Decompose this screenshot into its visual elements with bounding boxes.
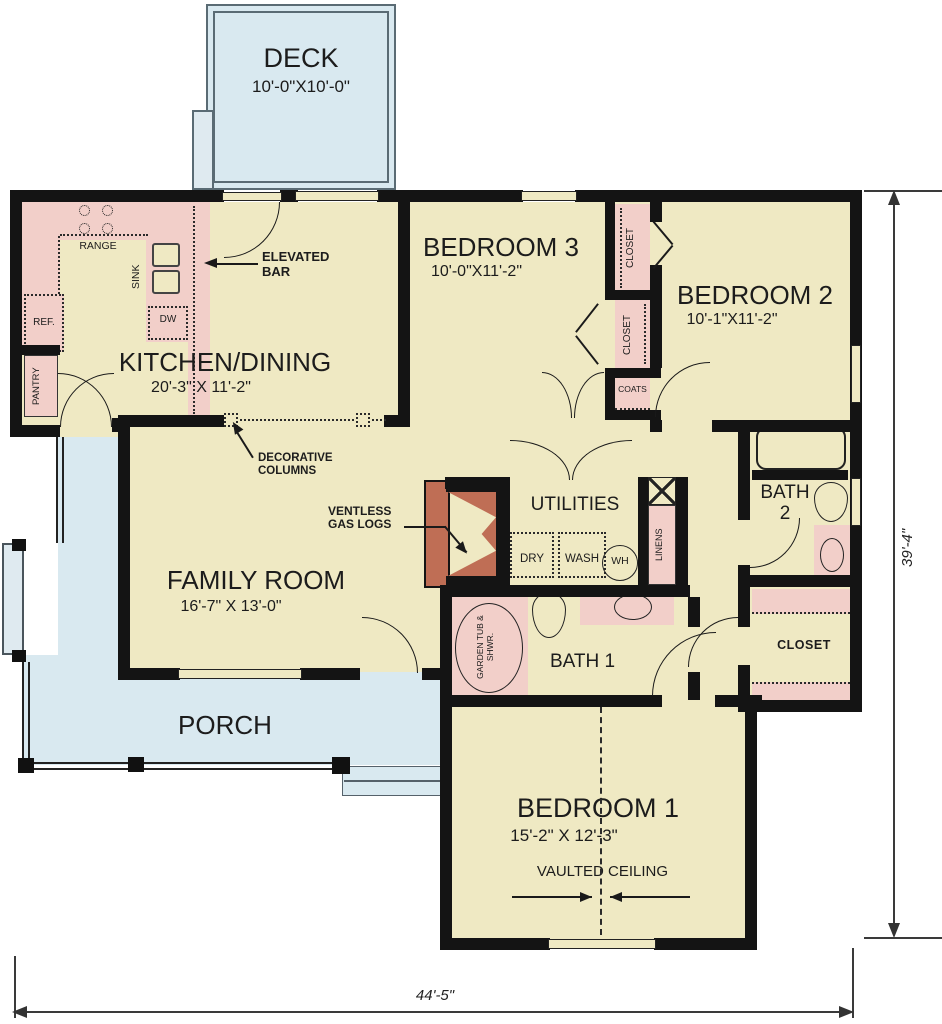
porch-left — [58, 437, 120, 672]
bath2-sink — [820, 538, 844, 572]
vaulted-arrow-line — [610, 896, 690, 898]
window — [521, 191, 577, 201]
wall — [850, 190, 862, 712]
wall — [650, 265, 662, 368]
dishwasher-label: DW — [148, 315, 188, 326]
sink-basins — [152, 243, 182, 297]
decorative-column — [356, 413, 370, 427]
wall — [384, 415, 410, 427]
bedroom3-closet-label: CLOSET — [622, 306, 633, 364]
dim-line-vertical — [893, 194, 895, 932]
decorative-columns-note: DECORATIVE COLUMNS — [258, 452, 360, 478]
white-patch — [22, 437, 58, 655]
porch-post — [128, 757, 144, 772]
elevated-bar-note: ELEVATED BAR — [262, 250, 352, 279]
wall — [22, 345, 60, 355]
wall — [745, 707, 757, 950]
bath1-label: BATH 1 — [535, 652, 630, 672]
wall — [440, 938, 550, 950]
wall — [738, 575, 862, 587]
window — [178, 669, 302, 679]
bath2-tub — [756, 427, 846, 470]
wall — [118, 415, 224, 427]
wall — [676, 477, 688, 589]
window — [851, 345, 861, 403]
porch-post — [332, 757, 350, 774]
deck-label: DECK — [206, 44, 396, 72]
porch-railing-left-lower — [22, 662, 30, 762]
window — [222, 192, 282, 201]
sink-label: SINK — [130, 248, 142, 306]
wall — [445, 477, 505, 489]
wall — [650, 420, 662, 432]
wall — [738, 420, 750, 520]
ventless-gas-logs-note: VENTLESS GAS LOGS — [328, 505, 414, 532]
wall — [377, 190, 523, 202]
porch-railing-bottom — [22, 762, 340, 770]
deck-step — [192, 110, 214, 190]
dim-extension — [864, 190, 942, 192]
porch-post — [12, 650, 26, 662]
closet-rod-dotted — [644, 304, 646, 364]
deck-area — [206, 4, 396, 190]
bedroom1-dims: 15'-2" X 12'-3" — [470, 827, 658, 845]
refrigerator-label: REF. — [24, 318, 64, 329]
window — [295, 191, 379, 201]
porch-railing-left — [56, 437, 64, 543]
wall — [440, 585, 690, 597]
elevated-bar-leader — [216, 263, 258, 265]
family-room-label: FAMILY ROOM — [150, 567, 362, 594]
bath2-label-line1: BATH — [755, 483, 815, 503]
bedroom2-label: BEDROOM 2 — [665, 282, 845, 309]
bedroom3-label: BEDROOM 3 — [412, 234, 590, 261]
master-closet-label: CLOSET — [770, 639, 838, 652]
arrow-left-icon — [204, 258, 217, 268]
wall — [688, 597, 700, 627]
wall — [10, 425, 60, 437]
wall — [738, 587, 750, 627]
dim-arrow-left-icon — [12, 1006, 27, 1018]
bedroom2-dims: 10'-1"X11'-2" — [668, 312, 796, 329]
porch-label: PORCH — [160, 712, 290, 739]
coats-label: COATS — [610, 385, 655, 394]
ventless-leader — [404, 526, 446, 528]
porch-post — [12, 539, 26, 551]
overall-width-dim: 44'-5" — [385, 988, 485, 1004]
wall — [605, 202, 615, 298]
kitchen-dims: 20'-3" X 11'-2" — [95, 380, 307, 397]
washer-label: WASH — [558, 553, 606, 565]
arrow-right-icon — [580, 892, 592, 902]
dim-arrow-up-icon — [888, 190, 900, 205]
deck-dims: 10'-0"X10'-0" — [206, 78, 396, 96]
bedroom2-closet-label: CLOSET — [625, 216, 636, 280]
coats-closet — [615, 378, 650, 410]
wall — [440, 695, 662, 707]
dim-arrow-down-icon — [888, 923, 900, 938]
ridge-line — [600, 707, 602, 935]
porch-bay-window — [2, 543, 24, 655]
closet-rod-dotted — [620, 208, 622, 288]
dim-extension — [864, 937, 942, 939]
wall — [738, 700, 862, 712]
dryer-label: DRY — [510, 553, 554, 565]
wall — [10, 190, 224, 202]
linens-bifold-door — [648, 477, 676, 505]
wall — [440, 585, 452, 950]
garden-tub-label: GARDEN TUB & SHWR. — [476, 602, 502, 692]
bedroom1-label: BEDROOM 1 — [478, 794, 718, 822]
wall — [498, 477, 510, 597]
wall — [654, 938, 757, 950]
window — [851, 478, 861, 526]
closet-shelf-top — [752, 589, 850, 614]
wall — [752, 470, 848, 480]
kitchen-label: KITCHEN/DINING — [95, 349, 355, 376]
utilities-label: UTILITIES — [505, 495, 645, 515]
arrow-left-icon — [610, 892, 622, 902]
range-label: RANGE — [62, 241, 134, 252]
wall — [118, 418, 130, 672]
window — [548, 939, 656, 949]
wall — [712, 420, 862, 432]
wall — [575, 190, 862, 202]
bedroom3-dims: 10'-0"X11'-2" — [414, 264, 539, 281]
wall — [10, 190, 22, 437]
wall — [300, 668, 360, 680]
dim-arrow-right-icon — [839, 1006, 854, 1018]
porch-step-line — [344, 780, 452, 782]
range-burners — [76, 204, 122, 238]
bath1-sink — [614, 594, 652, 620]
floor-plan: DECK 10'-0"X10'-0" PORCH RANGE SINK DW R… — [0, 0, 942, 1024]
overall-height-dim: 39'-4" — [900, 513, 916, 583]
family-room-dims: 16'-7" X 13'-0" — [150, 599, 312, 616]
vaulted-ceiling-label: VAULTED CEILING — [510, 864, 695, 880]
porch-post — [18, 758, 34, 773]
pantry-label: PANTRY — [31, 359, 42, 413]
wall — [605, 410, 661, 420]
wall — [638, 477, 648, 589]
dim-line-horizontal — [18, 1011, 848, 1013]
wall — [118, 668, 180, 680]
counter-dotted-line-v — [58, 236, 60, 298]
wall — [398, 202, 410, 417]
linens-label: LINENS — [654, 512, 664, 578]
water-heater-label: WH — [602, 556, 638, 567]
wall — [650, 202, 662, 222]
